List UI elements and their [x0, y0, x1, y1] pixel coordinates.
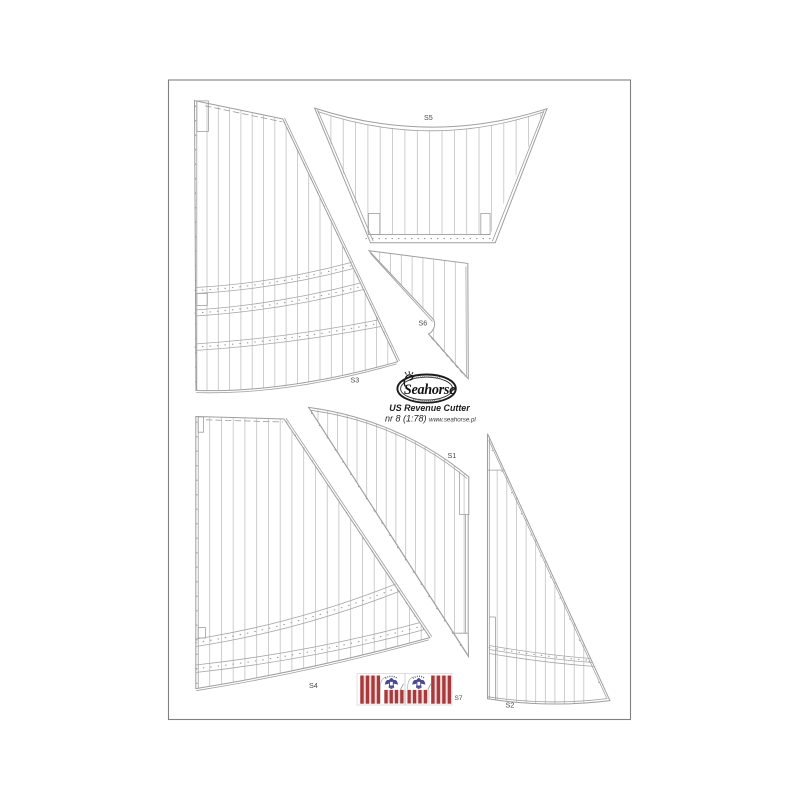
svg-text:S1: S1: [448, 451, 457, 460]
svg-text:S4: S4: [309, 681, 318, 690]
svg-text:S5: S5: [424, 113, 433, 122]
svg-text:S7: S7: [455, 695, 463, 702]
svg-text:S2: S2: [506, 701, 515, 710]
svg-text:US Revenue Cutter: US Revenue Cutter: [389, 403, 470, 413]
svg-text:S6: S6: [419, 319, 428, 328]
svg-text:Seahorse: Seahorse: [404, 382, 455, 398]
svg-text:S3: S3: [351, 376, 360, 385]
